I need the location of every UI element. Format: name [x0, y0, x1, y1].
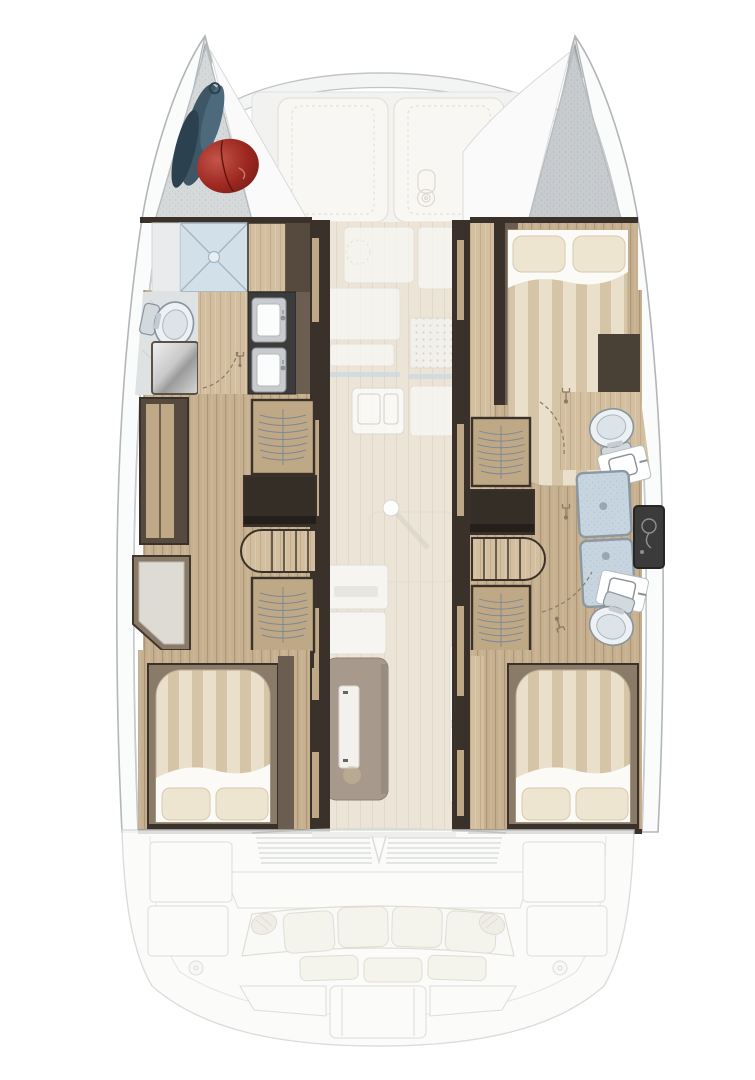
refrigerator-column	[326, 658, 388, 800]
port-sink-aft	[252, 348, 286, 392]
stbd-fwd-runner	[494, 223, 505, 405]
port-vanity-wall-fwd	[286, 223, 310, 292]
saloon-locker-a-lip	[334, 586, 378, 597]
stbd-fwd-pillow-1	[513, 236, 565, 272]
port-hull-interior	[133, 217, 316, 834]
port-aft-cabin	[138, 650, 312, 834]
stbd-companionway-steps	[472, 538, 545, 580]
port-sink-fwd	[252, 298, 286, 342]
stbd-dark-cabinet	[470, 490, 534, 534]
starboard-bulkhead-fwd	[470, 217, 638, 223]
stbd-aft-side-strip	[470, 656, 484, 832]
port-aft-pillow-1	[162, 788, 210, 820]
port-hanging-locker-aft	[252, 578, 314, 652]
aft-cockpit	[122, 829, 634, 1047]
galley-counter-a	[344, 227, 414, 283]
bench-seat-cushions	[300, 955, 487, 982]
port-stern-lockers	[148, 842, 232, 975]
galley-counter-d	[330, 344, 394, 366]
pedestal-mount	[383, 500, 399, 516]
port-bulkhead-fwd	[140, 217, 312, 223]
port-wardrobe	[140, 398, 188, 544]
port-companionway-steps	[241, 530, 316, 572]
galley-edge-starboard	[408, 374, 454, 379]
saloon-locker-b	[324, 612, 386, 654]
stbd-hanging-locker-fwd	[472, 418, 530, 486]
saloon-starboard-wall	[452, 220, 470, 832]
catamaran-floor-plan	[0, 0, 755, 1080]
cooktop-grate	[410, 318, 454, 368]
port-vanity-counter-fwd	[248, 223, 286, 292]
stbd-hanging-locker-aft	[472, 586, 530, 654]
port-hanging-locker-fwd	[252, 400, 314, 474]
galley-sink	[352, 388, 404, 434]
galley-low-unit	[410, 386, 454, 436]
starboard-aft-cabin	[468, 650, 642, 834]
stbd-fwd-pillow-2	[573, 236, 625, 272]
galley-counter-c	[324, 288, 400, 340]
stbd-shower-column	[634, 506, 664, 568]
refrigerator-door	[339, 686, 359, 768]
port-washer-unit	[152, 342, 198, 394]
port-window-bench	[133, 556, 190, 650]
port-desk-unit	[244, 476, 316, 526]
galley-counter-b	[418, 227, 454, 289]
floor-plan-canvas	[0, 0, 755, 1080]
stbd-fwd-corner-wall	[598, 334, 640, 392]
starboard-forepeak	[463, 50, 622, 222]
saloon-aft-door	[312, 832, 456, 838]
port-aft-pillow-2	[216, 788, 268, 820]
starboard-stern-lockers	[523, 842, 607, 975]
port-shower	[152, 223, 248, 292]
port-head-wood-floor	[198, 292, 248, 394]
port-aft-side-wall	[278, 656, 294, 832]
saloon	[310, 220, 470, 832]
stbd-aft-pillow-2	[576, 788, 628, 820]
starboard-hull-interior	[468, 217, 664, 834]
port-vanity-sinks	[248, 292, 310, 394]
galley-edge-port	[324, 372, 400, 377]
stbd-aft-pillow-1	[522, 788, 570, 820]
